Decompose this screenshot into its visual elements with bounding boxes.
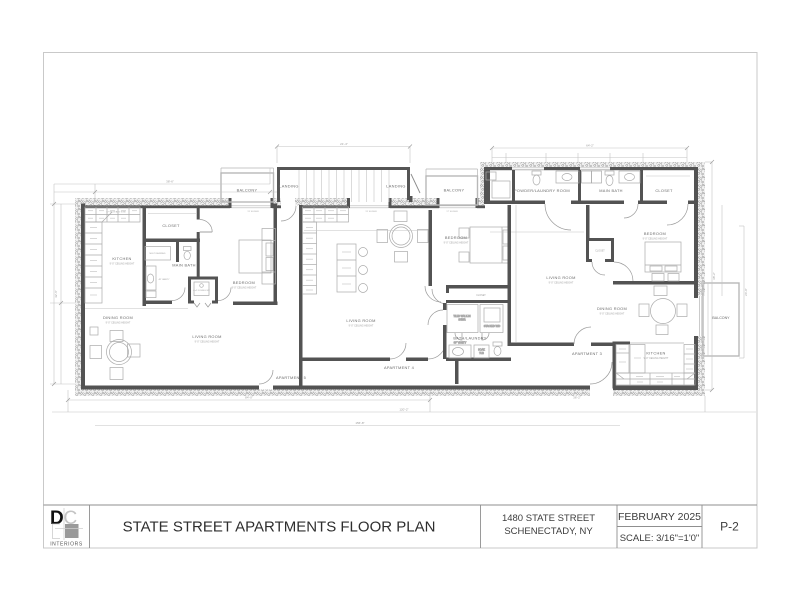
svg-text:1480 STATE STREET: 1480 STATE STREET: [502, 513, 595, 524]
svg-text:42'-6": 42'-6": [54, 290, 58, 298]
svg-text:APARTMENT 4: APARTMENT 4: [384, 365, 415, 370]
svg-text:APARTMENT 3: APARTMENT 3: [572, 351, 602, 356]
svg-text:BALCONY: BALCONY: [444, 188, 465, 193]
svg-text:9'-0" CEILING HEIGHT: 9'-0" CEILING HEIGHT: [195, 341, 220, 344]
svg-text:CLOSET: CLOSET: [162, 223, 180, 228]
svg-text:BATH/LAUNDRY: BATH/LAUNDRY: [453, 336, 486, 341]
svg-text:9'-0" CEILING HEIGHT: 9'-0" CEILING HEIGHT: [106, 322, 131, 325]
svg-text:9'-0" CEILING HEIGHT: 9'-0" CEILING HEIGHT: [643, 238, 668, 241]
svg-text:POWDER/LAUNDRY ROOM: POWDER/LAUNDRY ROOM: [514, 188, 570, 193]
svg-text:9'-0" CEILING HEIGHT: 9'-0" CEILING HEIGHT: [110, 263, 135, 266]
svg-text:BEDROOM: BEDROOM: [233, 280, 255, 285]
svg-text:13' SLIDER: 13' SLIDER: [365, 211, 377, 213]
svg-text:36'-2": 36'-2": [573, 396, 581, 400]
svg-text:9'-0" CEILING HEIGHT: 9'-0" CEILING HEIGHT: [349, 325, 374, 328]
svg-text:CLOSET: CLOSET: [595, 250, 605, 253]
svg-text:60" VANITY: 60" VANITY: [454, 342, 467, 345]
svg-text:9'-0" CEILING HEIGHT: 9'-0" CEILING HEIGHT: [600, 313, 625, 316]
svg-text:156'-8": 156'-8": [355, 421, 364, 425]
svg-text:21'-4": 21'-4": [340, 142, 348, 146]
svg-text:CLOSET: CLOSET: [476, 294, 486, 297]
svg-text:P-2: P-2: [720, 520, 739, 534]
svg-text:9'-0" CEILING HEIGHT: 9'-0" CEILING HEIGHT: [549, 282, 574, 285]
svg-text:4'x4' DOUBLE WC: 4'x4' DOUBLE WC: [193, 290, 210, 292]
svg-text:DINING ROOM: DINING ROOM: [103, 315, 133, 320]
svg-text:120'-2": 120'-2": [399, 408, 408, 412]
svg-text:LIVING ROOM: LIVING ROOM: [192, 334, 221, 339]
svg-text:9'-0" CEILING HEIGHT: 9'-0" CEILING HEIGHT: [232, 287, 257, 290]
svg-text:LIVING ROOM: LIVING ROOM: [546, 275, 575, 280]
svg-text:SCALE: 3/16"=1'0": SCALE: 3/16"=1'0": [620, 533, 700, 544]
svg-text:LANDING: LANDING: [386, 184, 405, 189]
svg-text:MAIN BATH: MAIN BATH: [172, 263, 196, 268]
svg-text:STACKED W/D: STACKED W/D: [484, 325, 501, 328]
svg-text:D: D: [50, 508, 64, 529]
svg-text:48" VANITY: 48" VANITY: [159, 278, 171, 281]
svg-text:SCHENECTADY, NY: SCHENECTADY, NY: [504, 526, 593, 537]
svg-text:13' SLIDER: 13' SLIDER: [247, 211, 259, 213]
svg-text:FEBRUARY 2025: FEBRUARY 2025: [618, 511, 701, 523]
svg-text:INTERIORS: INTERIORS: [50, 542, 83, 548]
svg-text:KITCHEN: KITCHEN: [646, 351, 665, 356]
svg-text:DINING ROOM: DINING ROOM: [597, 306, 627, 311]
svg-text:38'-2": 38'-2": [712, 272, 716, 280]
svg-text:KITCHEN: KITCHEN: [112, 256, 131, 261]
svg-text:CLOSET: CLOSET: [655, 188, 673, 193]
svg-text:STATE STREET APARTMENTS FLOOR: STATE STREET APARTMENTS FLOOR PLAN: [123, 519, 436, 536]
svg-text:84'-0": 84'-0": [245, 396, 253, 400]
svg-text:24'-0": 24'-0": [744, 288, 748, 296]
svg-text:BEDROOM: BEDROOM: [644, 231, 666, 236]
svg-text:64'-2": 64'-2": [586, 144, 594, 148]
svg-text:9'-0" CEILING HEIGHT: 9'-0" CEILING HEIGHT: [644, 357, 669, 360]
svg-text:MAIN BATH: MAIN BATH: [599, 188, 623, 193]
svg-text:SHWR: SHWR: [458, 319, 466, 322]
svg-text:LIVING ROOM: LIVING ROOM: [346, 318, 375, 323]
svg-text:TUB: TUB: [479, 352, 484, 355]
svg-text:17' SLIDER: 17' SLIDER: [446, 211, 458, 213]
svg-text:BALCONY: BALCONY: [712, 316, 730, 320]
svg-text:MULTI SHWRHD: MULTI SHWRHD: [149, 253, 166, 255]
svg-text:9'-0" CEILING HEIGHT: 9'-0" CEILING HEIGHT: [444, 242, 469, 245]
svg-text:BEDROOM: BEDROOM: [445, 235, 467, 240]
svg-text:38'-6": 38'-6": [166, 180, 174, 184]
svg-text:LANDING: LANDING: [279, 184, 298, 189]
